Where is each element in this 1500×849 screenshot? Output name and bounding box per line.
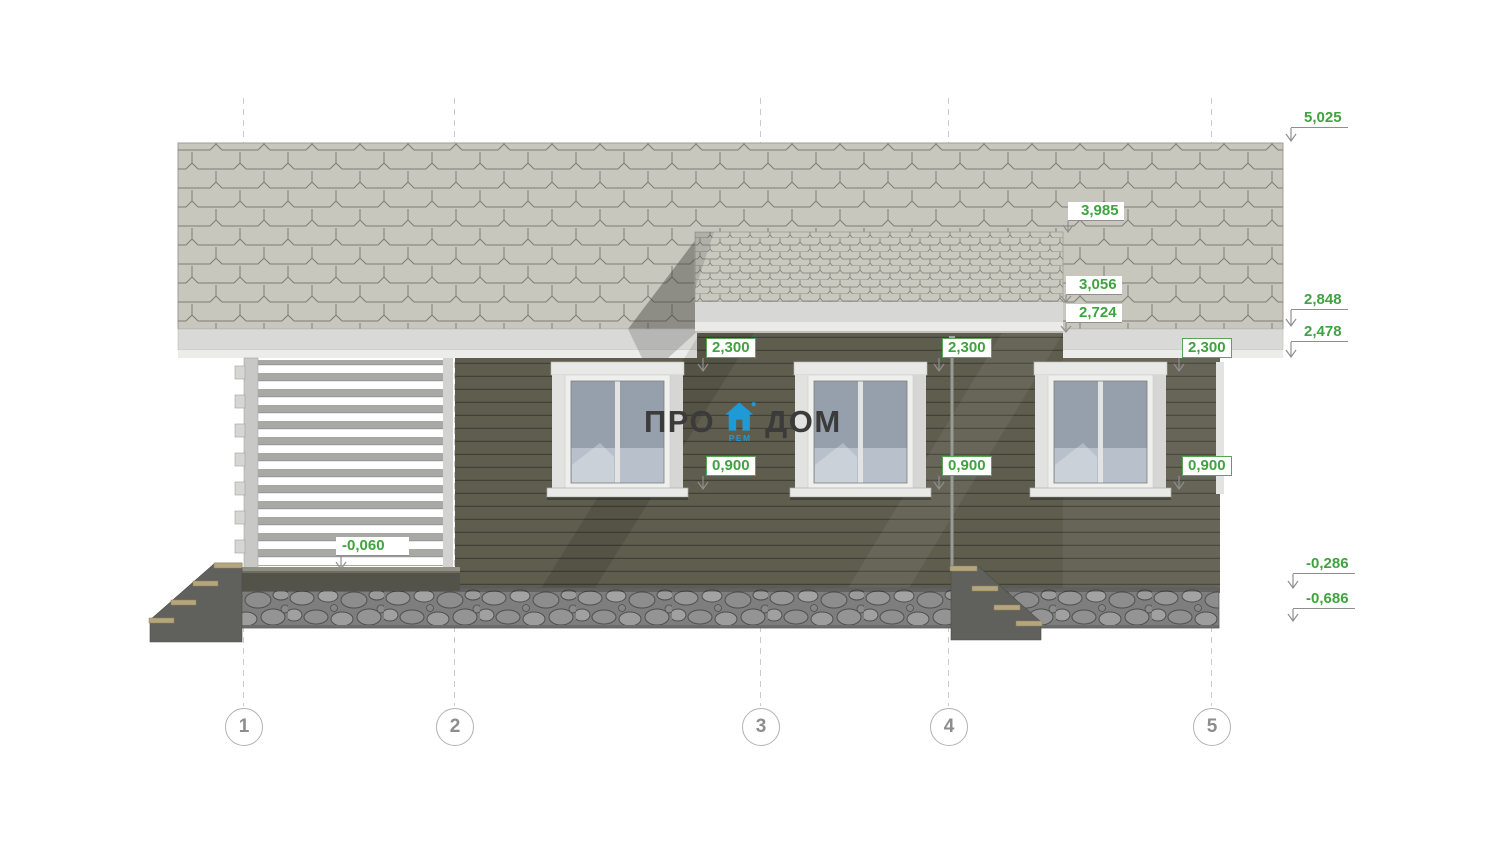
porch-fascia (695, 302, 1063, 322)
axis-marker-1: 1 (225, 708, 263, 746)
axis-marker-2: 2 (436, 708, 474, 746)
dim-label-eave-top: 2,848 (1291, 291, 1348, 310)
porch-roof (695, 232, 1063, 333)
axis-marker-5: 5 (1193, 708, 1231, 746)
dim-label-window-sill-3: 0,900 (1182, 456, 1232, 476)
leader-arrow (1288, 574, 1298, 588)
dim-label-window-head-1: 2,300 (706, 338, 756, 358)
porch-railing (217, 358, 460, 591)
dim-label-ridge: 5,025 (1291, 109, 1348, 128)
deck-edge (217, 567, 460, 571)
deck-rim (217, 571, 460, 591)
dim-label-window-head-3: 2,300 (1182, 338, 1232, 358)
dim-label-eave-bottom: 2,478 (1291, 323, 1348, 342)
dim-label-porch-ridge: 3,985 (1068, 202, 1124, 221)
stairs-left (149, 563, 242, 642)
axis-marker-4: 4 (930, 708, 968, 746)
elevation-drawing-canvas: 5,025 2,848 2,478 -0,286 -0,686 3,985 3,… (0, 0, 1500, 849)
leader-arrow (1288, 609, 1298, 621)
dim-label-porch-eave-top: 3,056 (1066, 276, 1122, 295)
leader-arrow (1286, 128, 1296, 141)
dim-label-plinth-top: -0,286 (1293, 555, 1355, 574)
watermark-logo: ПРО РЕМ ДОМ (644, 401, 842, 443)
dim-label-porch-eave-bottom: 2,724 (1066, 304, 1122, 323)
dim-label-porch-floor: -0,060 (336, 537, 409, 556)
dim-label-window-sill-2: 0,900 (942, 456, 992, 476)
window-3 (1030, 362, 1171, 500)
right-post (443, 358, 453, 570)
foundation (240, 588, 1219, 628)
logo-text-left: ПРО (644, 404, 715, 440)
dim-label-window-head-2: 2,300 (942, 338, 992, 358)
dim-label-window-sill-1: 0,900 (706, 456, 756, 476)
house-icon (723, 401, 757, 432)
logo-text-right: ДОМ (765, 404, 842, 440)
leader-arrow (1286, 342, 1296, 357)
dim-label-ground: -0,686 (1293, 590, 1355, 609)
corner-post (244, 358, 258, 570)
logo-subtext: РЕМ (729, 433, 752, 443)
axis-marker-3: 3 (742, 708, 780, 746)
railing-slats (258, 360, 443, 566)
